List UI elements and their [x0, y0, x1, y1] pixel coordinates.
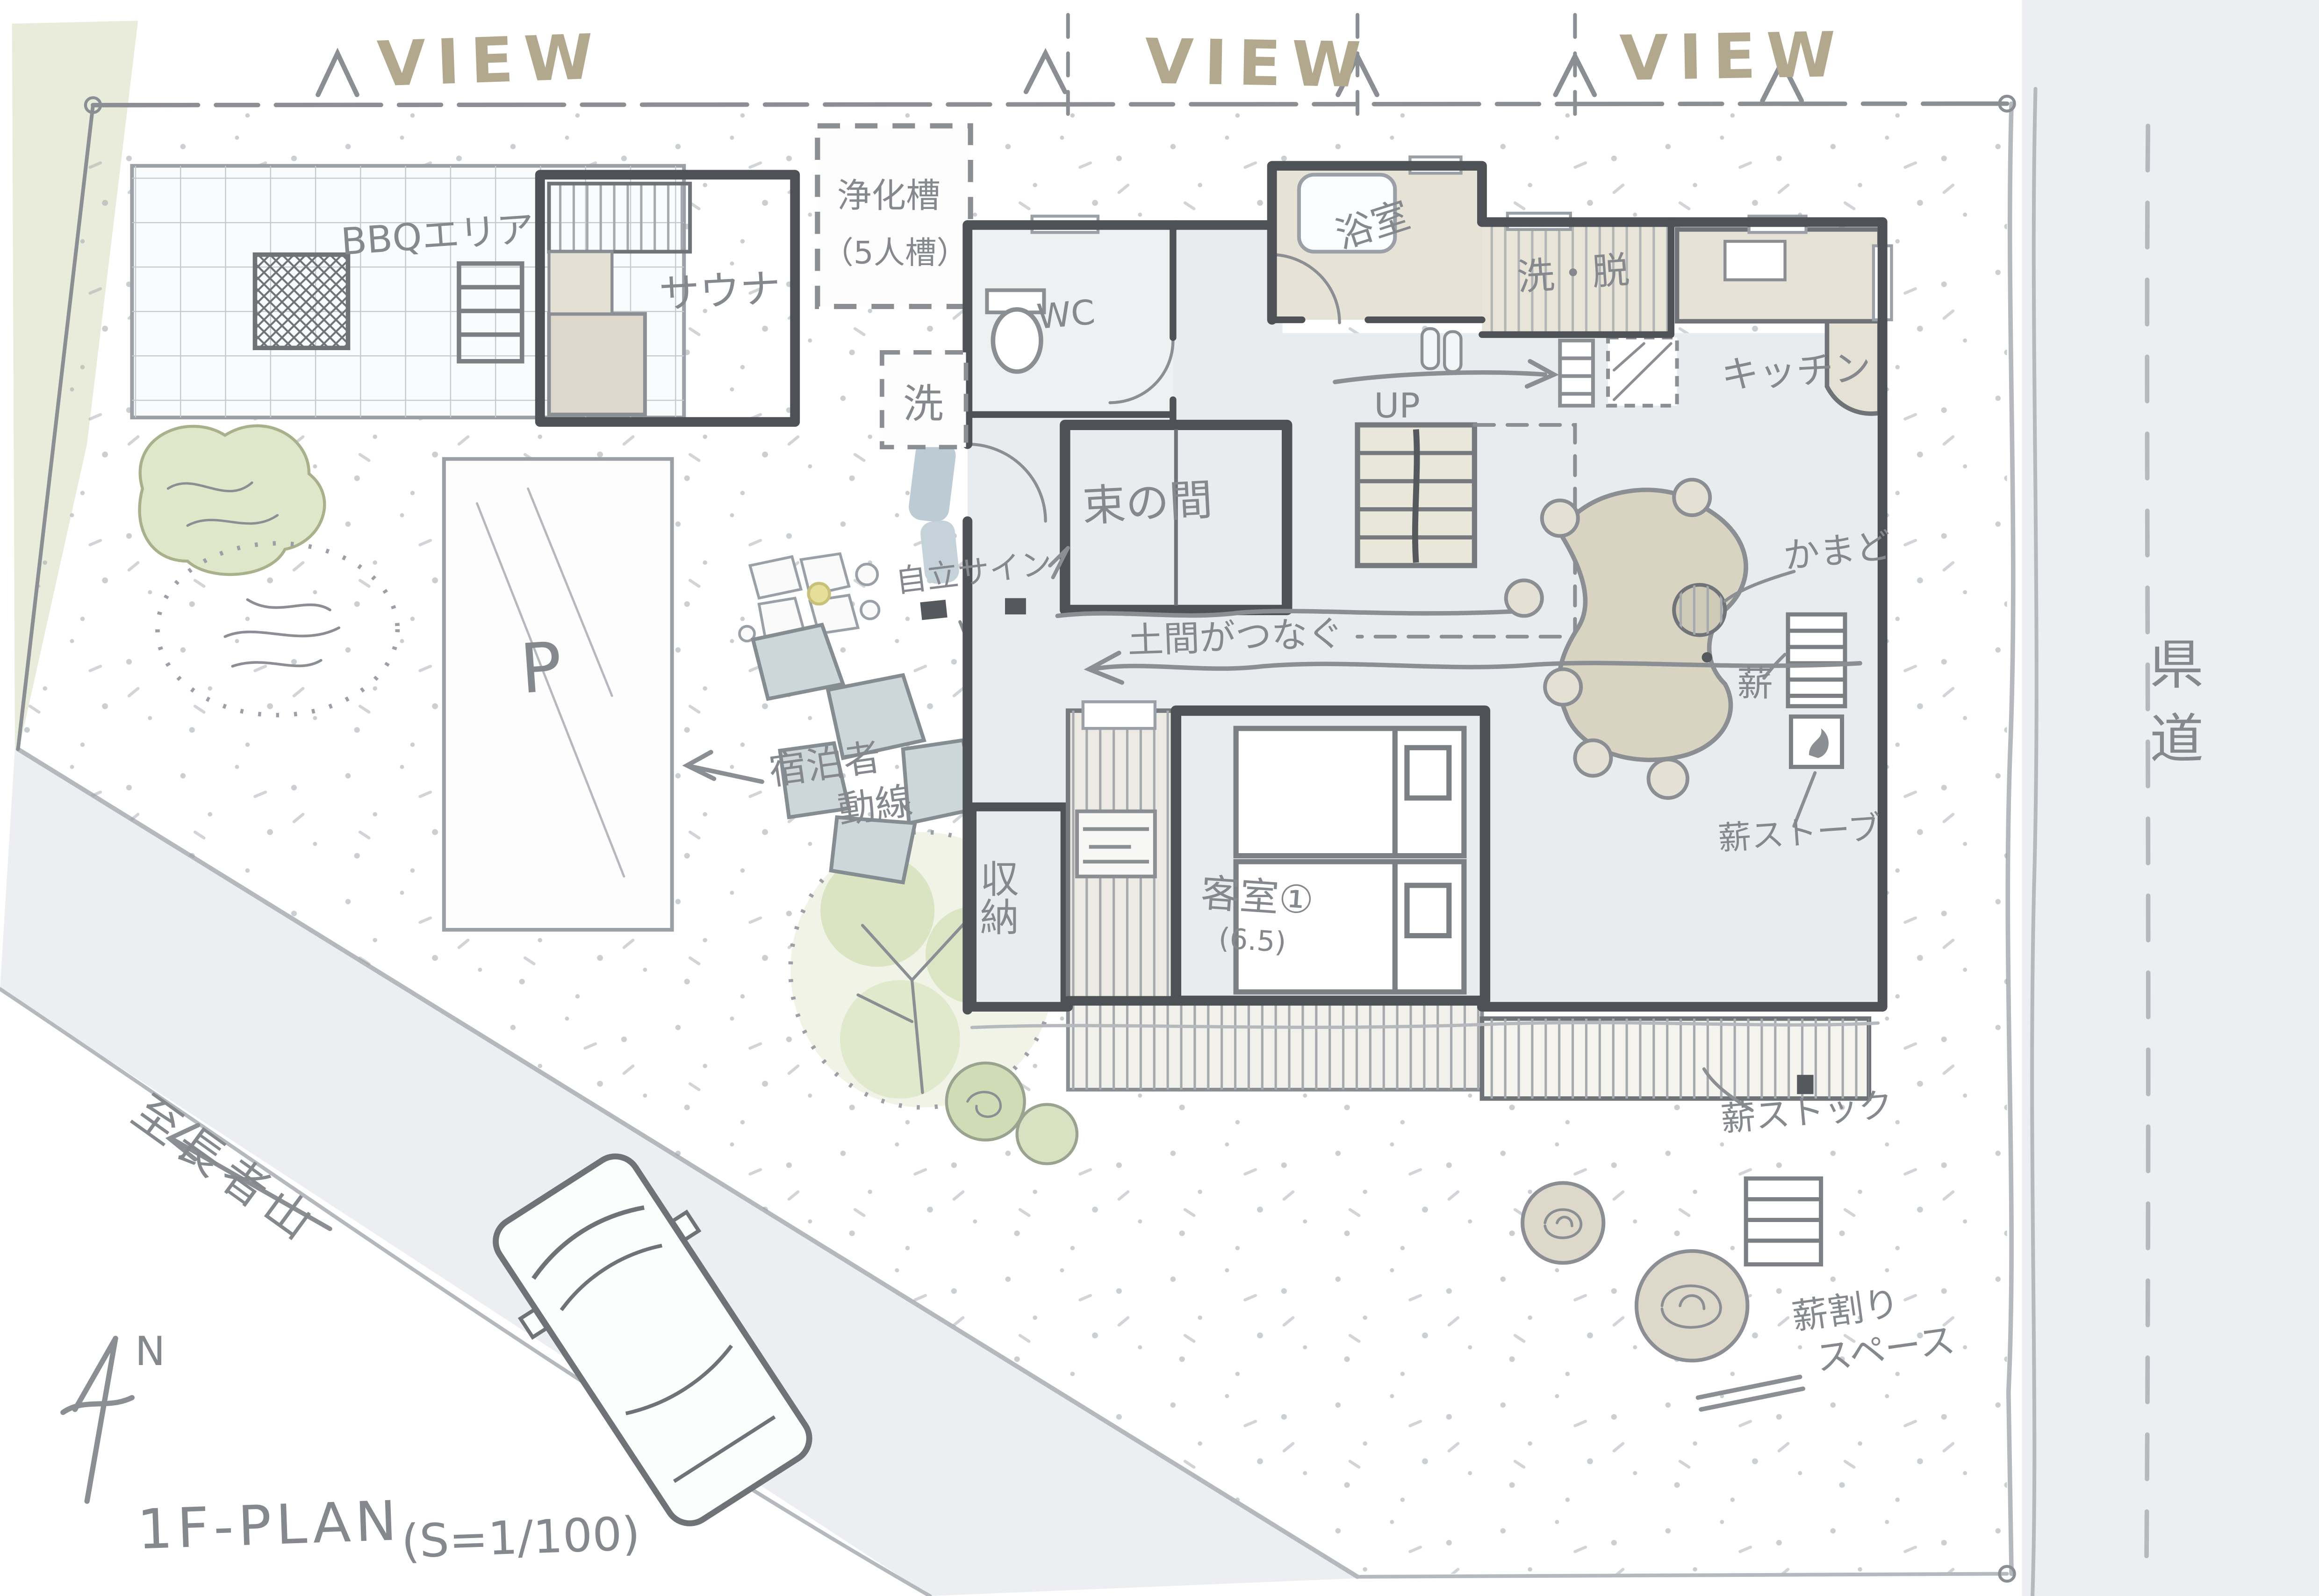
- split-rack: [1746, 1179, 1821, 1265]
- north-label: N: [135, 1328, 165, 1374]
- view-label-1: VIEW: [376, 21, 605, 101]
- storage-label: 収納: [973, 859, 1019, 936]
- kitchen-label: キッチン: [1720, 346, 1872, 397]
- septic-label-1: 浄化槽: [837, 176, 941, 216]
- sauna-label: サウナ: [658, 265, 782, 318]
- shelf: [1560, 340, 1593, 405]
- tsukanoma-label: 束の間: [1081, 474, 1213, 532]
- firewood-deck: [1482, 1019, 1869, 1099]
- parking-label: P: [517, 627, 565, 709]
- kamado-table: [1559, 490, 1746, 760]
- south-deck: [1068, 1001, 1482, 1090]
- stairs-up-label: UP: [1374, 387, 1420, 426]
- view-label-2: VIEW: [1144, 25, 1372, 101]
- house: UP キッチン: [968, 157, 1892, 1099]
- bed-1: [1236, 728, 1464, 856]
- view-label-3: VIEW: [1619, 19, 1847, 95]
- laundry-label: 洗: [903, 381, 944, 427]
- engawa-strip: [1068, 702, 1176, 1001]
- wood-stove: [1791, 717, 1842, 767]
- prefectural-road-label: 県道: [2140, 637, 2204, 785]
- guest-room-label: 客室①: [1199, 870, 1315, 923]
- doma-label: 土間がつなぐ: [1127, 613, 1344, 661]
- plan-scale: (S=1/100): [401, 1507, 641, 1569]
- prefectural-road: [2008, 0, 2319, 1596]
- septic-tank: [818, 126, 970, 306]
- bush-2: [1017, 1105, 1077, 1164]
- bush-1: [947, 1063, 1025, 1140]
- wc-label: WC: [1035, 293, 1097, 337]
- bbq-grill: [255, 255, 348, 348]
- wash-dress-label: 洗・脱: [1515, 248, 1631, 299]
- sign-light: [809, 583, 830, 604]
- plan-title: 1F-PLAN: [136, 1489, 402, 1561]
- firewood-label: 薪: [1737, 663, 1773, 705]
- floor-plan-canvas: VIEW VIEW VIEW BBQエリア 浄化槽 （5人槽） サウナ: [0, 0, 2319, 1596]
- guest-room-size: (6.5): [1218, 922, 1287, 959]
- firewood-rack: [1788, 614, 1845, 706]
- septic-label-2: （5人槽）: [822, 235, 968, 271]
